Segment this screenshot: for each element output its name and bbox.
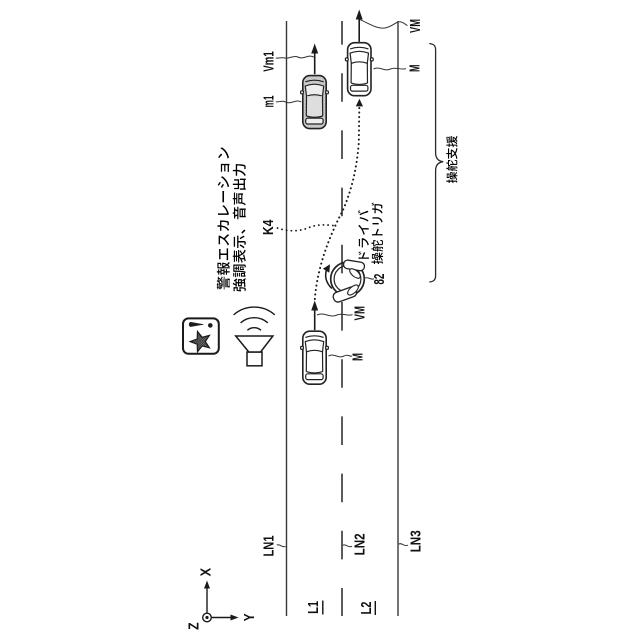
svg-text:VM: VM	[351, 306, 368, 321]
svg-text:K4: K4	[260, 219, 277, 235]
svg-text:LN2: LN2	[351, 533, 368, 555]
svg-text:VM: VM	[407, 19, 424, 33]
svg-text:LN3: LN3	[407, 530, 424, 552]
svg-text:X: X	[197, 568, 214, 577]
svg-text:LN1: LN1	[261, 536, 278, 557]
svg-text:Vm1: Vm1	[260, 51, 277, 71]
svg-text:82: 82	[371, 274, 388, 285]
svg-text:m1: m1	[260, 96, 277, 108]
svg-text:L2: L2	[358, 602, 375, 615]
svg-text:L1: L1	[305, 601, 322, 614]
svg-text:M: M	[407, 65, 424, 73]
svg-text:Y: Y	[241, 613, 258, 621]
svg-text:M: M	[349, 353, 366, 361]
svg-text:Z: Z	[186, 622, 203, 630]
